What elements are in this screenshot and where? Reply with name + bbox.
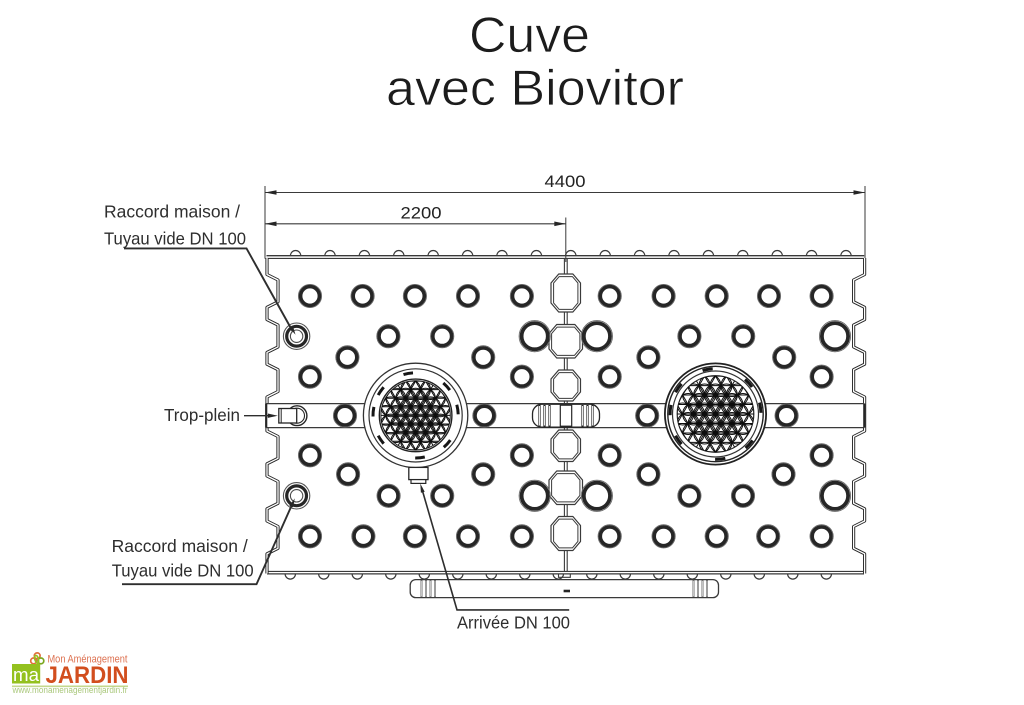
svg-text:Raccord maison /: Raccord maison /: [112, 536, 248, 556]
svg-text:Raccord maison /: Raccord maison /: [104, 202, 240, 222]
svg-text:www.monamenagementjardin.fr: www.monamenagementjardin.fr: [12, 685, 128, 695]
svg-text:Trop-plein: Trop-plein: [164, 405, 240, 425]
svg-text:2200: 2200: [401, 204, 442, 222]
svg-text:Cuve: Cuve: [469, 7, 590, 63]
svg-text:Arrivée DN 100: Arrivée DN 100: [457, 612, 570, 632]
svg-text:ma: ma: [13, 664, 40, 685]
svg-text:4400: 4400: [545, 173, 586, 191]
svg-text:Tuyau vide DN 100: Tuyau vide DN 100: [112, 560, 254, 580]
svg-text:avec Biovitor: avec Biovitor: [386, 60, 684, 116]
svg-text:Tuyau vide DN 100: Tuyau vide DN 100: [104, 229, 246, 249]
